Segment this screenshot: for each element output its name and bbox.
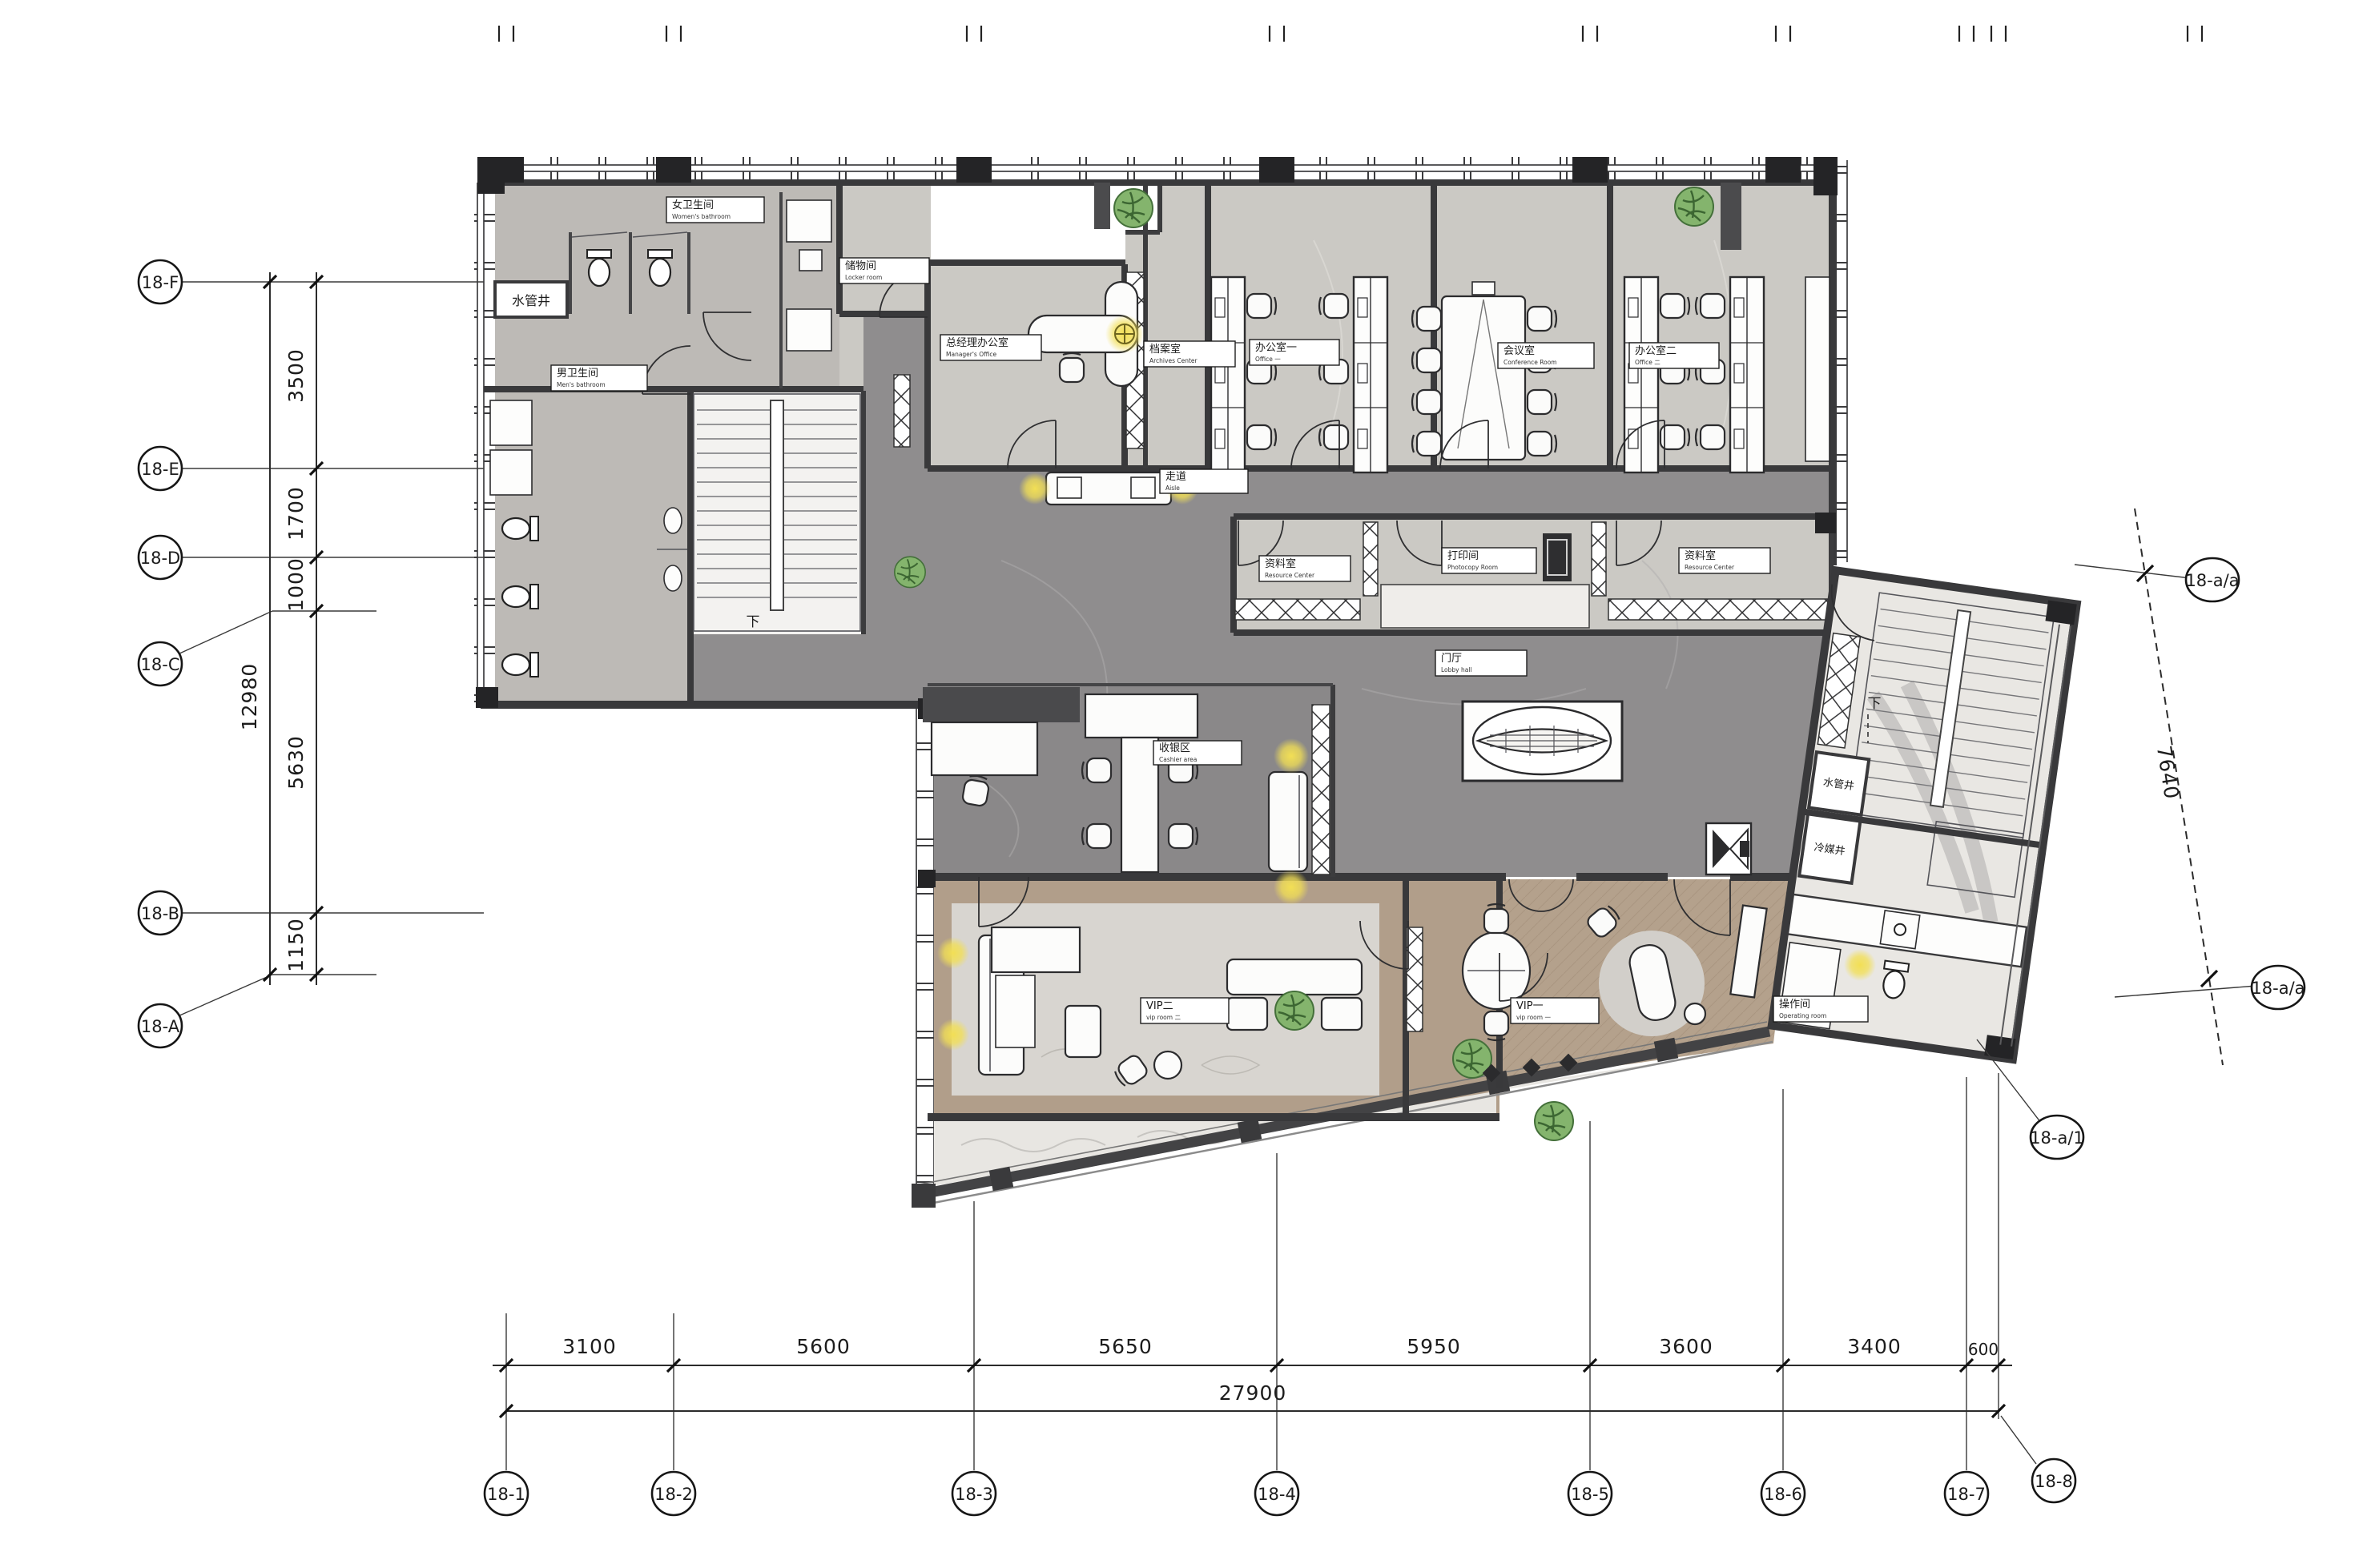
svg-text:Office 一: Office 一	[1255, 356, 1281, 363]
room-label-locker-room: 储物间 Locker room	[839, 258, 929, 283]
dim-bottom-total: 27900	[1219, 1381, 1287, 1405]
plant-symbol	[1114, 189, 1153, 227]
dim-left-4: 1150	[284, 918, 308, 972]
svg-text:18-D: 18-D	[140, 549, 180, 568]
svg-text:Locker room: Locker room	[845, 274, 882, 281]
stair-down-label: 下	[747, 614, 760, 630]
room-label-managers-office: 总经理办公室 Manager's Office	[940, 335, 1041, 360]
dim-bottom-3: 5950	[1407, 1335, 1461, 1358]
dim-bottom-1: 5600	[796, 1335, 851, 1358]
lobby-art-table	[1463, 702, 1622, 781]
dim-left-total: 12980	[238, 663, 261, 731]
floor-plan-page: 下	[0, 0, 2379, 1568]
room-label-resource-center-left: 资料室 Resource Center	[1259, 556, 1351, 581]
room-label-office-2: 办公室二 Office 二	[1629, 343, 1719, 368]
section-ticks	[499, 26, 2202, 42]
svg-text:储物间: 储物间	[845, 260, 876, 272]
svg-text:18-a/a: 18-a/a	[2251, 979, 2305, 998]
dim-left-3: 5630	[284, 735, 308, 790]
dim-bottom-4: 3600	[1659, 1335, 1713, 1358]
room-label-office-1: 办公室一 Office 一	[1250, 340, 1339, 365]
window-band-west-lower	[915, 705, 934, 1195]
svg-text:18-a/a: 18-a/a	[2185, 571, 2239, 590]
ceiling-light-symbol	[937, 937, 969, 969]
svg-text:18-5: 18-5	[1571, 1485, 1609, 1504]
svg-text:Archives Center: Archives Center	[1149, 357, 1198, 364]
dim-bottom-6: 600	[1968, 1340, 1999, 1359]
ceiling-light-symbol	[937, 1019, 969, 1051]
room-label-vip2: VIP二 vip room 二	[1141, 998, 1229, 1023]
svg-text:VIP二: VIP二	[1146, 1000, 1173, 1012]
svg-text:18-E: 18-E	[141, 460, 179, 479]
svg-text:18-B: 18-B	[141, 904, 179, 923]
svg-text:走道: 走道	[1165, 471, 1186, 483]
svg-text:Operating room: Operating room	[1779, 1012, 1826, 1019]
plant-symbol	[1675, 187, 1713, 226]
floor-plan-canvas: 下	[0, 0, 2379, 1568]
svg-text:18-8: 18-8	[2035, 1472, 2073, 1491]
svg-text:Resource Center: Resource Center	[1685, 564, 1735, 571]
dim-bottom-5: 3400	[1847, 1335, 1902, 1358]
dim-bottom-2: 5650	[1098, 1335, 1153, 1358]
dim-left-2: 1000	[284, 557, 308, 612]
plant-symbol	[1535, 1102, 1573, 1140]
reception-back-cabinet	[923, 687, 1080, 722]
svg-text:vip room 一: vip room 一	[1516, 1014, 1551, 1021]
svg-text:Manager's Office: Manager's Office	[946, 351, 997, 358]
room-label-mens-bathroom: 男卫生间 Men's bathroom	[551, 365, 647, 391]
svg-text:门厅: 门厅	[1441, 653, 1462, 665]
svg-text:18-a/1: 18-a/1	[2030, 1128, 2084, 1148]
grid-bubbles-bottom: 18-1 18-2 18-3 18-4 18-5 18-6 18-7 18-8	[485, 1459, 2075, 1515]
svg-text:vip room 二: vip room 二	[1146, 1014, 1181, 1021]
svg-text:水管井: 水管井	[512, 293, 550, 308]
svg-text:18-6: 18-6	[1764, 1485, 1802, 1504]
plant-symbol	[1275, 991, 1314, 1030]
floor-drain-symbol	[1706, 823, 1751, 874]
ceiling-light-symbol	[1274, 870, 1309, 905]
svg-text:18-2: 18-2	[654, 1485, 693, 1504]
room-label-pipe-shaft: 水管井	[495, 282, 567, 317]
svg-text:18-4: 18-4	[1258, 1485, 1296, 1504]
svg-text:Women's bathroom: Women's bathroom	[672, 213, 731, 220]
svg-text:Aisle: Aisle	[1165, 484, 1180, 492]
svg-text:Resource Center: Resource Center	[1265, 572, 1315, 579]
svg-text:18-F: 18-F	[142, 273, 179, 292]
svg-text:Lobby hall: Lobby hall	[1441, 666, 1472, 673]
svg-text:总经理办公室: 总经理办公室	[946, 336, 1008, 349]
svg-text:Cashier area: Cashier area	[1159, 756, 1197, 763]
dim-bottom-0: 3100	[562, 1335, 617, 1358]
room-label-cashier: 收银区 Cashier area	[1153, 741, 1242, 765]
room-label-lobby: 门厅 Lobby hall	[1435, 650, 1527, 676]
room-label-operating: 操作间 Operating room	[1773, 996, 1868, 1022]
stair-down-label: 下	[1868, 696, 1882, 712]
ceiling-light-symbol	[1274, 738, 1309, 774]
svg-text:办公室二: 办公室二	[1635, 344, 1677, 357]
svg-text:资料室: 资料室	[1685, 549, 1716, 562]
svg-text:女卫生间: 女卫生间	[672, 199, 714, 211]
plant-symbol	[895, 557, 925, 587]
room-label-aisle: 走道 Aisle	[1160, 469, 1248, 493]
ceiling-light-symbol	[1844, 949, 1876, 981]
svg-text:18-C: 18-C	[141, 655, 180, 674]
dim-left-1: 1700	[284, 486, 308, 541]
svg-text:Office 二: Office 二	[1635, 359, 1660, 366]
ceiling-light-symbol	[1019, 472, 1051, 505]
svg-text:收银区: 收银区	[1159, 742, 1190, 754]
svg-text:18-3: 18-3	[955, 1485, 993, 1504]
svg-text:Conference Room: Conference Room	[1503, 359, 1557, 366]
dim-left-0: 3500	[284, 348, 308, 403]
svg-text:打印间: 打印间	[1447, 550, 1479, 562]
room-label-photocopy: 打印间 Photocopy Room	[1442, 548, 1536, 573]
svg-text:VIP一: VIP一	[1516, 1000, 1544, 1012]
room-label-womens-bathroom: 女卫生间 Women's bathroom	[666, 197, 764, 223]
reception-desk	[932, 722, 1037, 775]
room-label-conference: 会议室 Conference Room	[1498, 343, 1594, 368]
grid-left: 3500 1700 1000 5630 1150 12980 18-F 18-E…	[139, 260, 484, 1047]
grid-bottom: 3100 5600 5650 5950 3600 3400 600 27900 …	[485, 1073, 2075, 1515]
room-label-vip1: VIP一 vip room 一	[1511, 998, 1599, 1023]
grid-bubbles-left: 18-F 18-E 18-D 18-C 18-B 18-A	[139, 260, 182, 1047]
svg-text:操作间: 操作间	[1779, 998, 1810, 1011]
svg-text:办公室一: 办公室一	[1255, 341, 1297, 354]
svg-text:Photocopy Room: Photocopy Room	[1447, 564, 1498, 571]
svg-text:档案室: 档案室	[1149, 343, 1181, 356]
svg-text:18-7: 18-7	[1947, 1485, 1986, 1504]
svg-text:18-1: 18-1	[487, 1485, 525, 1504]
svg-text:男卫生间: 男卫生间	[557, 368, 598, 380]
dim-right-0: 7640	[2152, 744, 2184, 801]
svg-text:18-A: 18-A	[141, 1017, 180, 1036]
lobby-sofa	[1269, 772, 1307, 871]
svg-text:资料室: 资料室	[1265, 557, 1296, 570]
room-label-archives: 档案室 Archives Center	[1144, 341, 1235, 367]
svg-text:Men's bathroom: Men's bathroom	[557, 381, 606, 388]
svg-text:会议室: 会议室	[1503, 344, 1535, 357]
room-label-resource-center-right: 资料室 Resource Center	[1679, 548, 1770, 573]
cashier-table	[1121, 738, 1158, 872]
